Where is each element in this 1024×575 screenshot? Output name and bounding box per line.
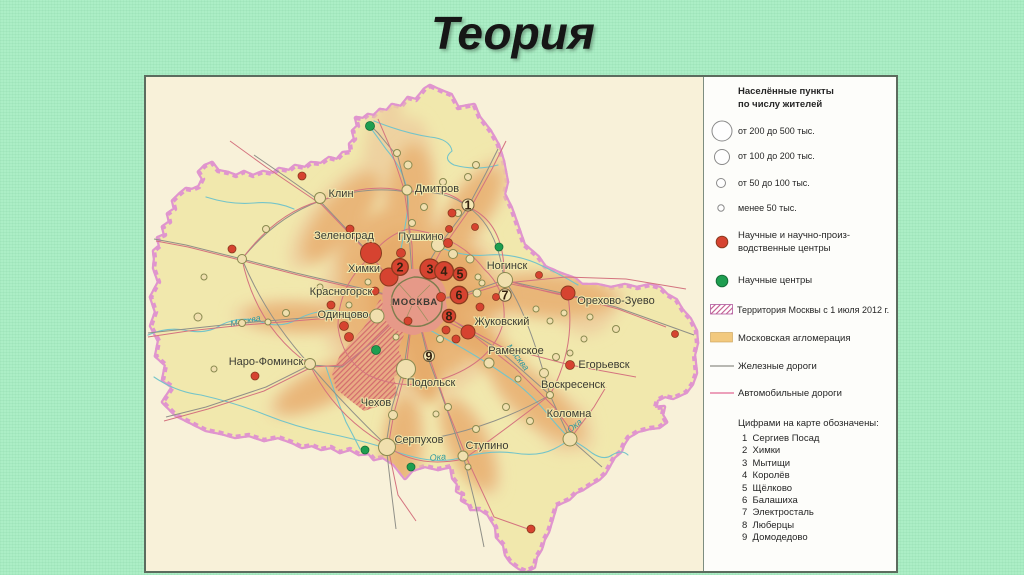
svg-text:8: 8 <box>446 310 453 324</box>
svg-text:9: 9 <box>426 350 433 364</box>
svg-text:Ногинск: Ногинск <box>487 260 528 272</box>
svg-text:Подольск: Подольск <box>407 377 456 389</box>
svg-text:Красногорск: Красногорск <box>310 286 373 298</box>
svg-text:7: 7 <box>502 289 509 303</box>
svg-text:Ступино: Ступино <box>466 440 509 452</box>
svg-text:Раменское: Раменское <box>488 345 544 357</box>
svg-text:Серпухов: Серпухов <box>395 434 444 446</box>
svg-text:Наро-Фоминск: Наро-Фоминск <box>229 356 304 368</box>
svg-text:Ока: Ока <box>429 451 446 463</box>
svg-text:Одинцово: Одинцово <box>317 309 368 321</box>
svg-text:3: 3 <box>427 263 434 277</box>
svg-text:Воскресенск: Воскресенск <box>541 379 605 391</box>
svg-text:6: 6 <box>456 289 463 303</box>
svg-text:2: 2 <box>397 261 404 275</box>
svg-text:Химки: Химки <box>348 263 380 275</box>
svg-text:Дмитров: Дмитров <box>415 183 459 195</box>
svg-text:Клин: Клин <box>328 188 353 200</box>
svg-text:Орехово-Зуево: Орехово-Зуево <box>577 295 655 307</box>
svg-text:МОСКВА: МОСКВА <box>392 297 438 308</box>
svg-text:4: 4 <box>441 265 448 279</box>
svg-text:Егорьевск: Егорьевск <box>578 359 629 371</box>
svg-text:Чехов: Чехов <box>361 397 392 409</box>
svg-text:Пушкино: Пушкино <box>398 231 443 243</box>
svg-text:1: 1 <box>465 199 472 213</box>
svg-text:5: 5 <box>457 268 464 282</box>
svg-text:Жуковский: Жуковский <box>475 316 530 328</box>
svg-text:Зеленоград: Зеленоград <box>314 230 374 242</box>
svg-text:Коломна: Коломна <box>547 408 593 420</box>
